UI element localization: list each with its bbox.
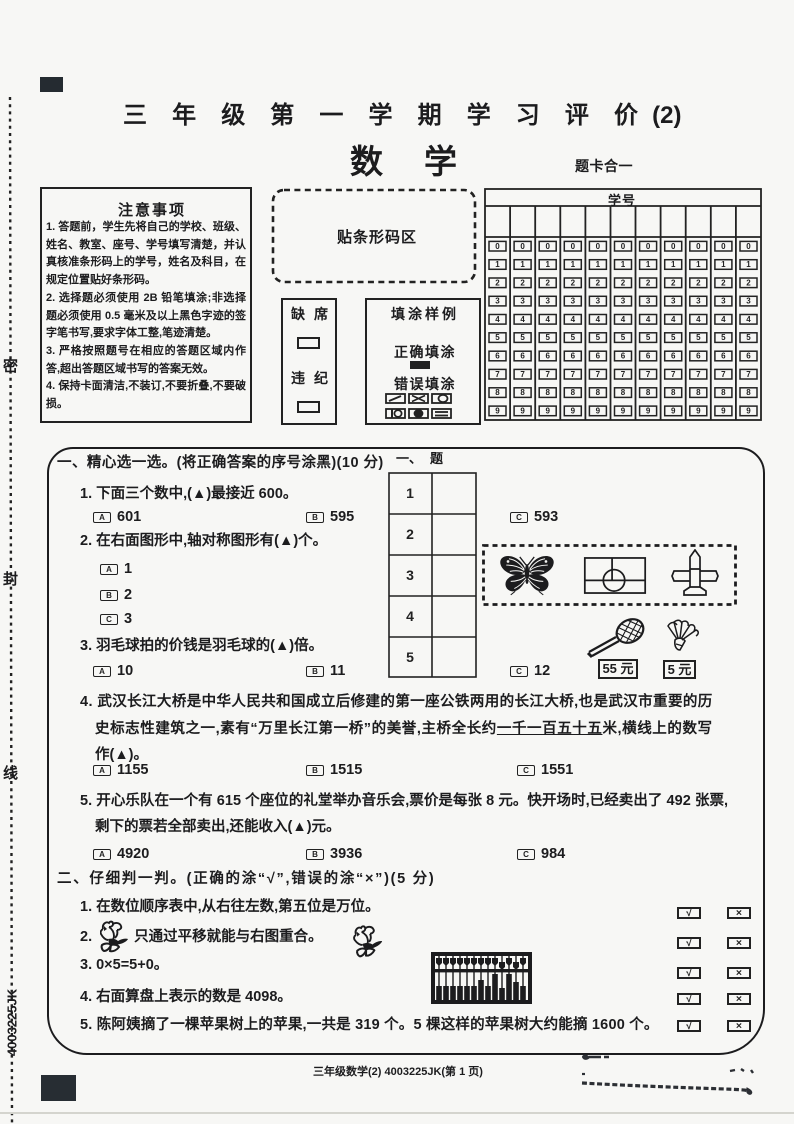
svg-text:4: 4 (721, 315, 726, 324)
svg-text:5: 5 (406, 649, 414, 665)
svg-text:5: 5 (621, 333, 626, 342)
svg-text:7: 7 (696, 370, 701, 379)
svg-text:9: 9 (646, 407, 651, 416)
svg-text:5: 5 (596, 333, 601, 342)
svg-text:2: 2 (571, 278, 576, 287)
svg-text:1: 1 (746, 260, 751, 269)
svg-text:8: 8 (646, 388, 651, 397)
svg-text:3: 3 (746, 297, 751, 306)
svg-text:3: 3 (621, 297, 626, 306)
svg-text:1: 1 (520, 260, 525, 269)
svg-text:0: 0 (545, 242, 550, 251)
svg-text:3: 3 (721, 297, 726, 306)
svg-text:8: 8 (721, 388, 726, 397)
svg-text:5: 5 (495, 333, 500, 342)
svg-text:0: 0 (571, 242, 576, 251)
svg-text:8: 8 (621, 388, 626, 397)
svg-text:5: 5 (646, 333, 651, 342)
svg-text:8: 8 (671, 388, 676, 397)
svg-text:6: 6 (571, 352, 576, 361)
svg-text:9: 9 (520, 407, 525, 416)
svg-text:3: 3 (646, 297, 651, 306)
svg-text:4: 4 (746, 315, 751, 324)
svg-text:4: 4 (495, 315, 500, 324)
svg-text:1: 1 (495, 260, 500, 269)
svg-text:2: 2 (621, 278, 626, 287)
svg-text:1: 1 (696, 260, 701, 269)
svg-text:3: 3 (545, 297, 550, 306)
svg-text:6: 6 (621, 352, 626, 361)
svg-text:1: 1 (721, 260, 726, 269)
svg-text:0: 0 (696, 242, 701, 251)
svg-text:0: 0 (520, 242, 525, 251)
svg-text:1: 1 (545, 260, 550, 269)
svg-text:9: 9 (596, 407, 601, 416)
svg-text:7: 7 (571, 370, 576, 379)
svg-text:4: 4 (621, 315, 626, 324)
svg-text:9: 9 (495, 407, 500, 416)
svg-text:4: 4 (520, 315, 525, 324)
svg-text:4: 4 (571, 315, 576, 324)
svg-text:6: 6 (495, 352, 500, 361)
svg-text:7: 7 (495, 370, 500, 379)
svg-text:7: 7 (746, 370, 751, 379)
svg-text:1: 1 (571, 260, 576, 269)
svg-text:0: 0 (671, 242, 676, 251)
svg-text:5: 5 (671, 333, 676, 342)
svg-text:2: 2 (596, 278, 601, 287)
svg-text:9: 9 (746, 407, 751, 416)
svg-text:4: 4 (545, 315, 550, 324)
svg-text:1: 1 (671, 260, 676, 269)
svg-text:2: 2 (696, 278, 701, 287)
svg-text:4: 4 (646, 315, 651, 324)
svg-text:2: 2 (721, 278, 726, 287)
svg-text:4: 4 (671, 315, 676, 324)
svg-text:8: 8 (571, 388, 576, 397)
svg-text:5: 5 (746, 333, 751, 342)
svg-text:7: 7 (621, 370, 626, 379)
svg-text:7: 7 (596, 370, 601, 379)
svg-text:0: 0 (495, 242, 500, 251)
svg-text:5: 5 (520, 333, 525, 342)
svg-text:6: 6 (520, 352, 525, 361)
svg-text:8: 8 (545, 388, 550, 397)
svg-text:2: 2 (495, 278, 500, 287)
svg-text:3: 3 (406, 567, 414, 583)
svg-text:5: 5 (696, 333, 701, 342)
svg-text:1: 1 (621, 260, 626, 269)
svg-text:5: 5 (571, 333, 576, 342)
svg-text:8: 8 (746, 388, 751, 397)
svg-text:2: 2 (520, 278, 525, 287)
svg-text:3: 3 (571, 297, 576, 306)
svg-text:0: 0 (621, 242, 626, 251)
svg-text:9: 9 (671, 407, 676, 416)
svg-text:9: 9 (545, 407, 550, 416)
svg-text:0: 0 (646, 242, 651, 251)
svg-text:3: 3 (696, 297, 701, 306)
svg-text:8: 8 (596, 388, 601, 397)
svg-text:9: 9 (696, 407, 701, 416)
svg-text:4: 4 (596, 315, 601, 324)
svg-text:6: 6 (596, 352, 601, 361)
svg-text:6: 6 (721, 352, 726, 361)
svg-text:7: 7 (671, 370, 676, 379)
svg-text:8: 8 (495, 388, 500, 397)
svg-text:0: 0 (596, 242, 601, 251)
svg-text:7: 7 (646, 370, 651, 379)
svg-text:2: 2 (746, 278, 751, 287)
svg-text:9: 9 (571, 407, 576, 416)
svg-text:5: 5 (545, 333, 550, 342)
svg-text:5: 5 (721, 333, 726, 342)
svg-text:1: 1 (646, 260, 651, 269)
svg-text:7: 7 (721, 370, 726, 379)
svg-text:3: 3 (596, 297, 601, 306)
svg-text:7: 7 (520, 370, 525, 379)
svg-text:6: 6 (646, 352, 651, 361)
svg-text:8: 8 (696, 388, 701, 397)
svg-text:0: 0 (746, 242, 751, 251)
svg-text:2: 2 (671, 278, 676, 287)
svg-text:6: 6 (545, 352, 550, 361)
svg-text:4: 4 (406, 608, 414, 624)
svg-text:3: 3 (520, 297, 525, 306)
svg-text:3: 3 (671, 297, 676, 306)
svg-text:2: 2 (406, 526, 414, 542)
svg-text:9: 9 (721, 407, 726, 416)
svg-text:9: 9 (621, 407, 626, 416)
svg-text:0: 0 (721, 242, 726, 251)
svg-text:6: 6 (671, 352, 676, 361)
svg-text:7: 7 (545, 370, 550, 379)
svg-text:6: 6 (746, 352, 751, 361)
svg-text:1: 1 (406, 485, 414, 501)
svg-text:2: 2 (646, 278, 651, 287)
svg-text:2: 2 (545, 278, 550, 287)
svg-text:8: 8 (520, 388, 525, 397)
svg-text:4: 4 (696, 315, 701, 324)
svg-text:1: 1 (596, 260, 601, 269)
svg-text:6: 6 (696, 352, 701, 361)
svg-text:3: 3 (495, 297, 500, 306)
